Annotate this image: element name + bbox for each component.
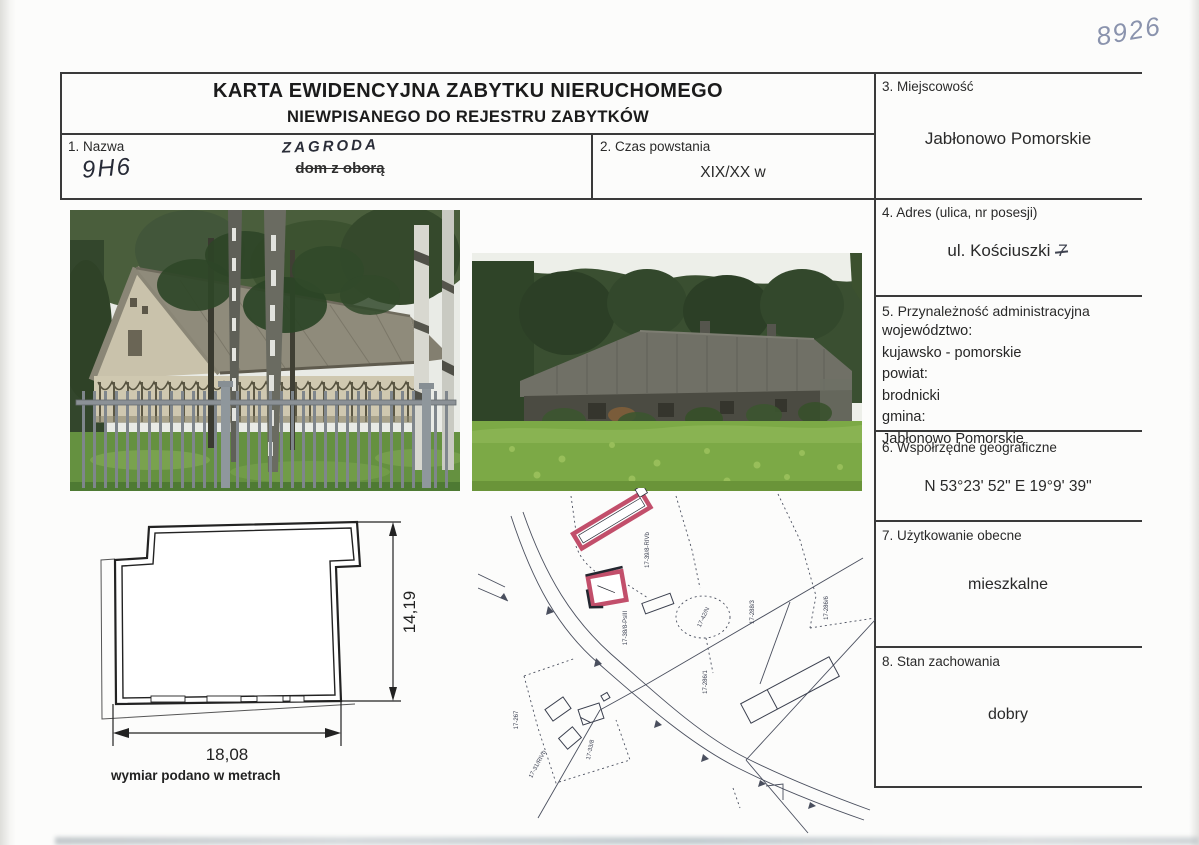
- field-4-value: ul. Kościuszki 7: [878, 241, 1138, 261]
- field-5-line: województwo:: [882, 321, 1140, 343]
- parcel-label: 17-31/RIVb: [528, 749, 548, 779]
- field-6-label: 6. Współrzędne geograficzne: [882, 440, 1057, 455]
- card-title: KARTA EWIDENCYJNA ZABYTKU NIERUCHOMEGO N…: [60, 80, 876, 127]
- card-title-line1: KARTA EWIDENCYJNA ZABYTKU NIERUCHOMEGO: [60, 80, 876, 103]
- card-title-line2: NIEWPISANEGO DO REJESTRU ZABYTKÓW: [60, 108, 876, 127]
- scan-edge-right: [1189, 0, 1199, 845]
- parcel-label: 17-38/8-PsIII: [623, 610, 629, 645]
- record-card-page: 8926 KARTA EWIDENCYJNA ZABYTKU NIERUCHOM…: [0, 0, 1199, 845]
- field-2-label: 2. Czas powstania: [600, 139, 710, 154]
- field-5-label: 5. Przynależność administracyjna: [882, 303, 1090, 319]
- field-8-label: 8. Stan zachowania: [882, 654, 1000, 669]
- map-highlighted-building-house: [584, 567, 629, 609]
- field-7-value: mieszkalne: [878, 576, 1138, 594]
- field6-bottom-border: [875, 520, 1142, 522]
- scan-edge-left: [0, 0, 16, 845]
- building-outline-outer: [115, 522, 360, 704]
- parcel-label: 17-267: [514, 710, 520, 729]
- width-dimension-label: 18,08: [206, 745, 249, 764]
- floor-plan-drawing: 14,19 18,08 wymiar podano w metrach: [85, 498, 455, 798]
- field-1-crossed-name: dom z oborą: [240, 160, 440, 177]
- photo-house-with-fence: [70, 210, 460, 491]
- parcel-label: 17-33/8: [586, 739, 596, 761]
- height-dimension-label: 14,19: [400, 591, 419, 634]
- map-highlighted-building-barn: [570, 488, 655, 548]
- plan-caption: wymiar podano w metrach: [110, 768, 281, 783]
- field-5-line: powiat:: [882, 364, 1140, 386]
- photo-barn-meadow: [472, 253, 862, 491]
- title-bottom-border: [60, 133, 876, 135]
- dimension-width: [113, 701, 341, 746]
- field-4-label: 4. Adres (ulica, nr posesji): [882, 205, 1037, 220]
- field8-bottom-border: [875, 786, 1142, 788]
- field-1-label: 1. Nazwa: [68, 139, 124, 154]
- field-5-lines: województwo: kujawsko - pomorskie powiat…: [882, 321, 1140, 450]
- parcel-label: 17-39/8-RIVb: [645, 531, 651, 567]
- field4-bottom-border: [875, 295, 1142, 297]
- field-3-label: 3. Miejscowość: [882, 79, 974, 94]
- field-5-line: gmina:: [882, 407, 1140, 429]
- parcel-label: 17-286/1: [703, 669, 709, 693]
- handwritten-page-number: 8926: [1094, 11, 1164, 53]
- field-4-handwritten-number: 7: [1055, 241, 1068, 261]
- row1-bottom-border: [60, 198, 1142, 200]
- field-2-value: XIX/XX w: [591, 164, 875, 182]
- field-8-value: dobry: [878, 706, 1138, 724]
- field-3-value: Jabłonowo Pomorskie: [878, 129, 1138, 149]
- parcel-label: 17-286/6: [824, 595, 830, 619]
- field-7-label: 7. Użytkowanie obecne: [882, 528, 1022, 543]
- field-4-street: ul. Kościuszki: [947, 241, 1050, 260]
- field-5-line: brodnicki: [882, 386, 1140, 408]
- site-map: 17-39/8-RIVb 17-38/8-PsIII 17-42/N 17-28…: [478, 488, 878, 840]
- field-1-handwritten-code: 9H6: [81, 153, 133, 184]
- table-border-top: [60, 72, 1142, 74]
- parcel-label: 17-42/N: [697, 607, 711, 629]
- field7-bottom-border: [875, 646, 1142, 648]
- parcel-label: 17-288/3: [750, 599, 756, 623]
- field-1-handwritten-name: ZAGRODA: [282, 136, 379, 156]
- field-5-line: kujawsko - pomorskie: [882, 343, 1140, 365]
- field-6-value: N 53°23' 52" E 19°9' 39": [878, 478, 1138, 496]
